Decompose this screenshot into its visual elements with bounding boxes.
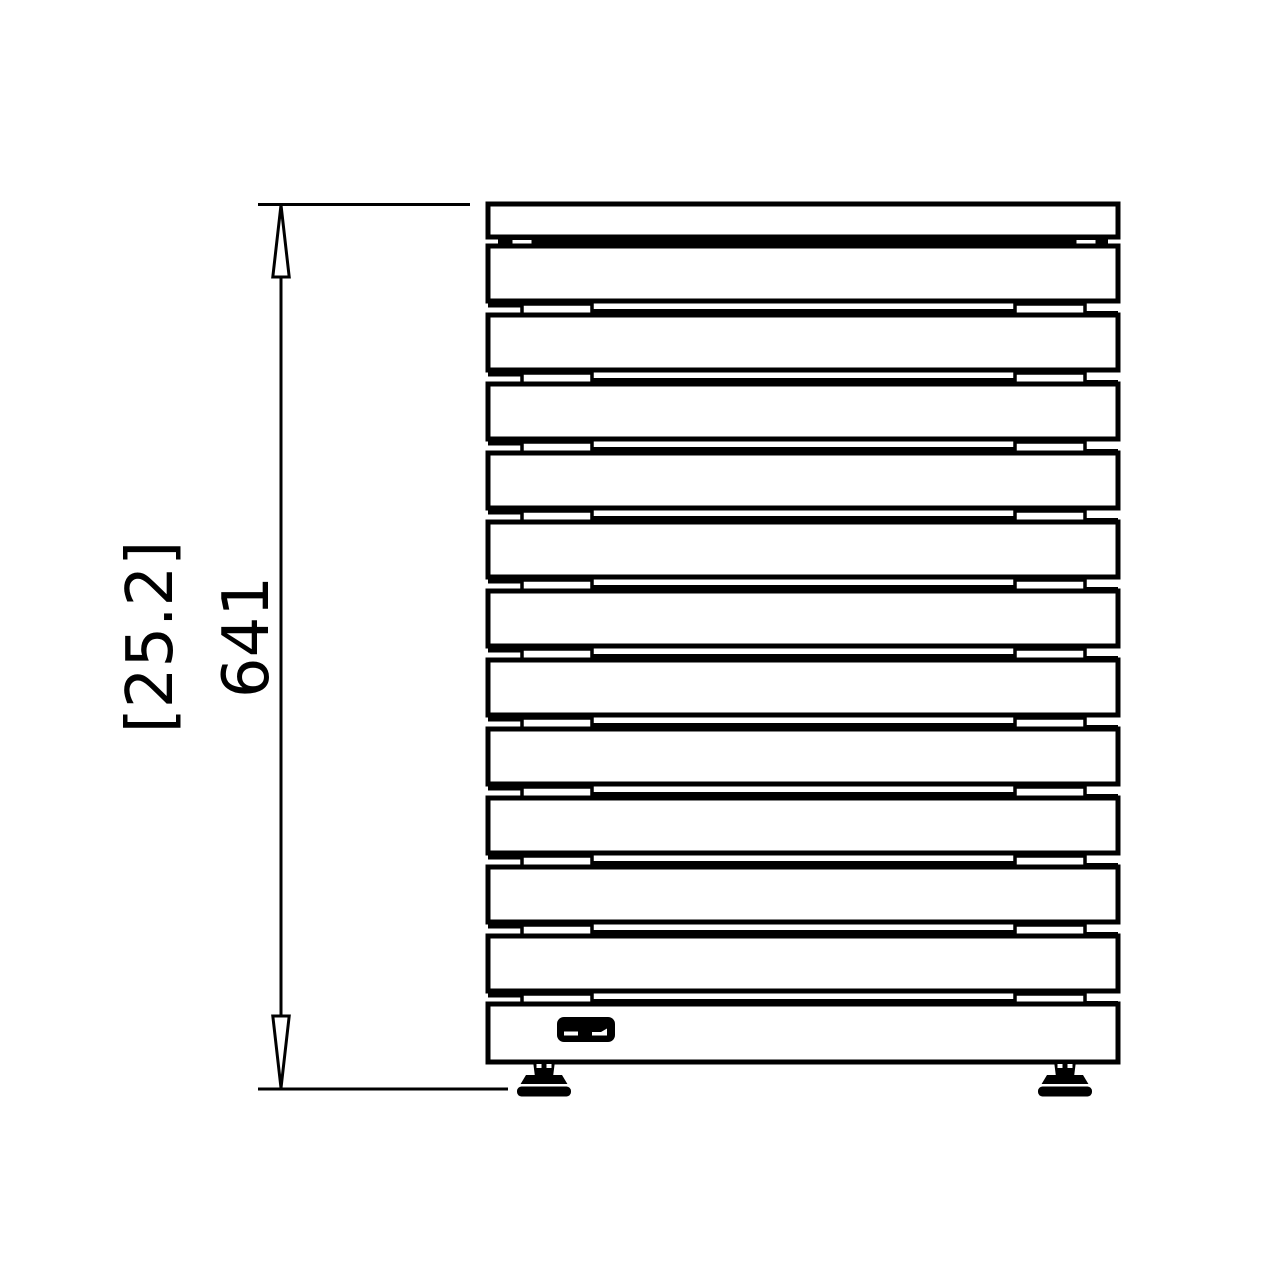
slat <box>488 798 1118 853</box>
slat <box>488 522 1118 577</box>
dimension-text-metric: 641 <box>210 576 284 698</box>
brand-badge-mark-left <box>564 1032 578 1036</box>
slat <box>488 384 1118 439</box>
foot-stem-left <box>533 1061 555 1077</box>
foot-collar-right <box>1041 1075 1089 1085</box>
slat <box>488 453 1118 508</box>
foot-pad-right <box>1038 1087 1092 1097</box>
radiator-elevation <box>488 204 1118 1097</box>
slat <box>488 591 1118 646</box>
foot-stem-right <box>1054 1061 1076 1077</box>
foot-collar-left <box>520 1075 568 1085</box>
slat <box>488 867 1118 922</box>
foot-separator <box>519 1084 569 1087</box>
slat <box>488 660 1118 715</box>
technical-drawing-svg: [25.2] 641 <box>0 0 1280 1280</box>
slat <box>488 936 1118 991</box>
top-cap-slat <box>488 204 1118 237</box>
vertical-dimension-annotation <box>258 205 508 1090</box>
foot-stem-notch <box>1058 1064 1063 1068</box>
foot-stem-notch <box>537 1064 542 1068</box>
dimension-arrowhead-up <box>273 205 289 277</box>
slat <box>488 729 1118 784</box>
foot-pad-left <box>517 1087 571 1097</box>
dimension-arrowhead-down <box>273 1016 289 1088</box>
foot-stem-notch <box>1068 1064 1073 1068</box>
drawing-canvas: [25.2] 641 <box>0 0 1280 1280</box>
foot-stem-notch <box>547 1064 552 1068</box>
slat <box>488 246 1118 301</box>
dimension-text-imperial: [25.2] <box>114 541 188 733</box>
foot-separator <box>1040 1084 1090 1087</box>
slat <box>488 315 1118 370</box>
